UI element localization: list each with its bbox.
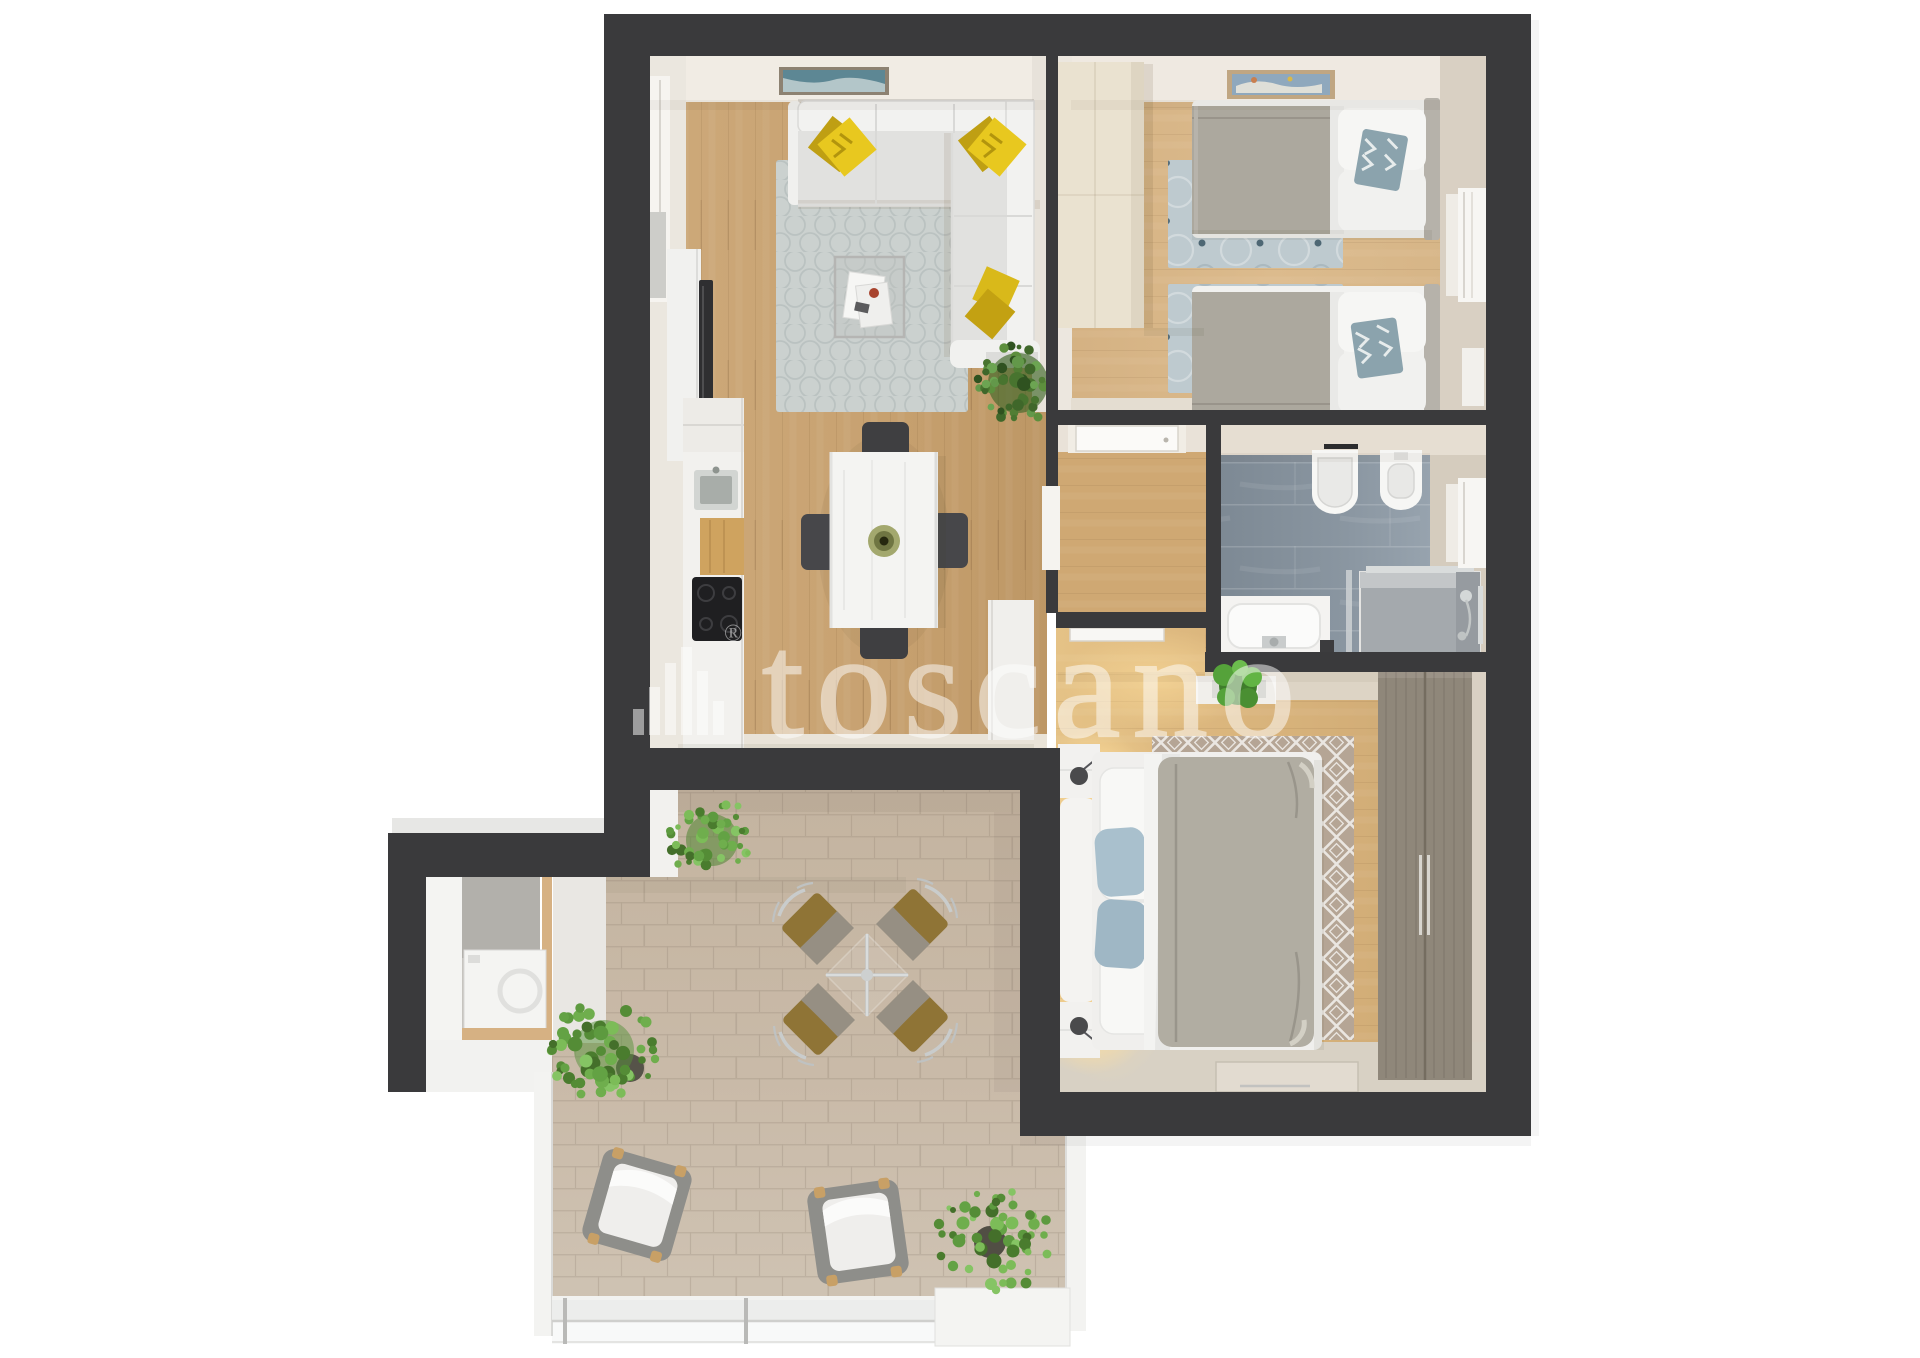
- svg-text:®: ®: [724, 621, 742, 647]
- svg-text:toscano: toscano: [762, 603, 1308, 769]
